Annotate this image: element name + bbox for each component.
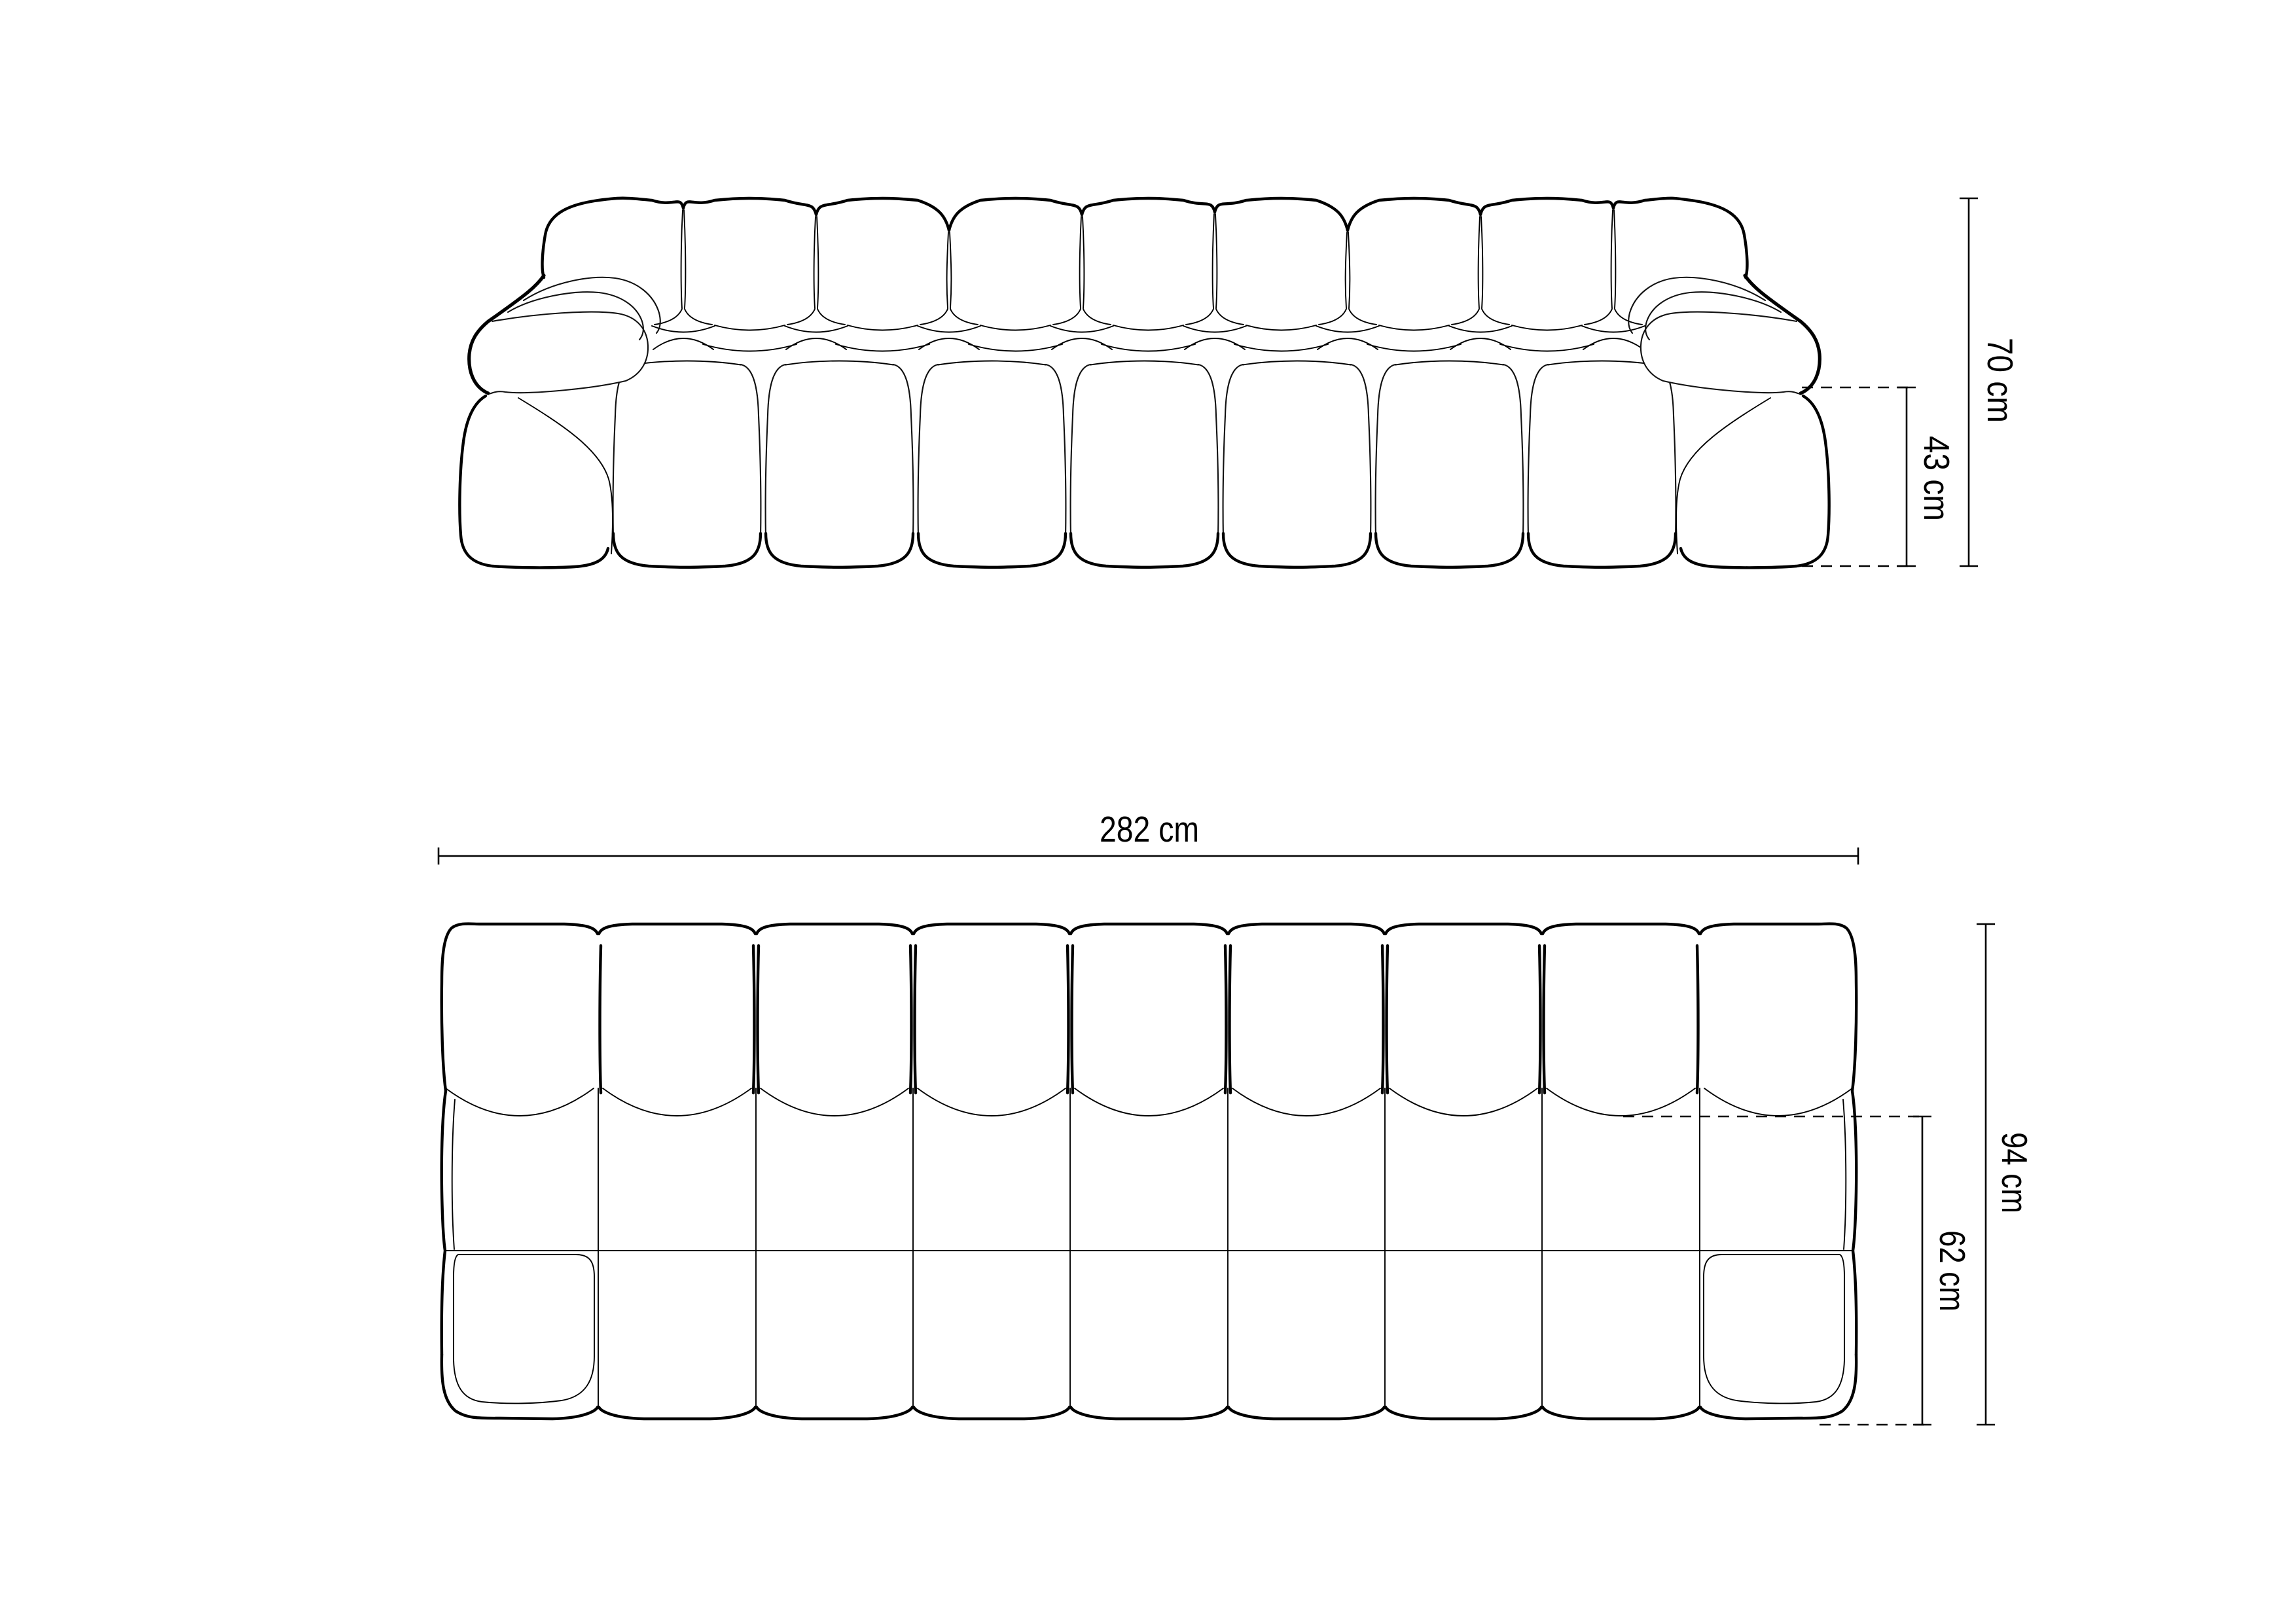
svg-text:70 cm: 70 cm <box>1980 338 2020 423</box>
svg-text:43 cm: 43 cm <box>1916 436 1957 521</box>
svg-text:62 cm: 62 cm <box>1932 1230 1973 1311</box>
svg-text:94 cm: 94 cm <box>1994 1132 2035 1213</box>
svg-text:282 cm: 282 cm <box>1100 809 1199 849</box>
